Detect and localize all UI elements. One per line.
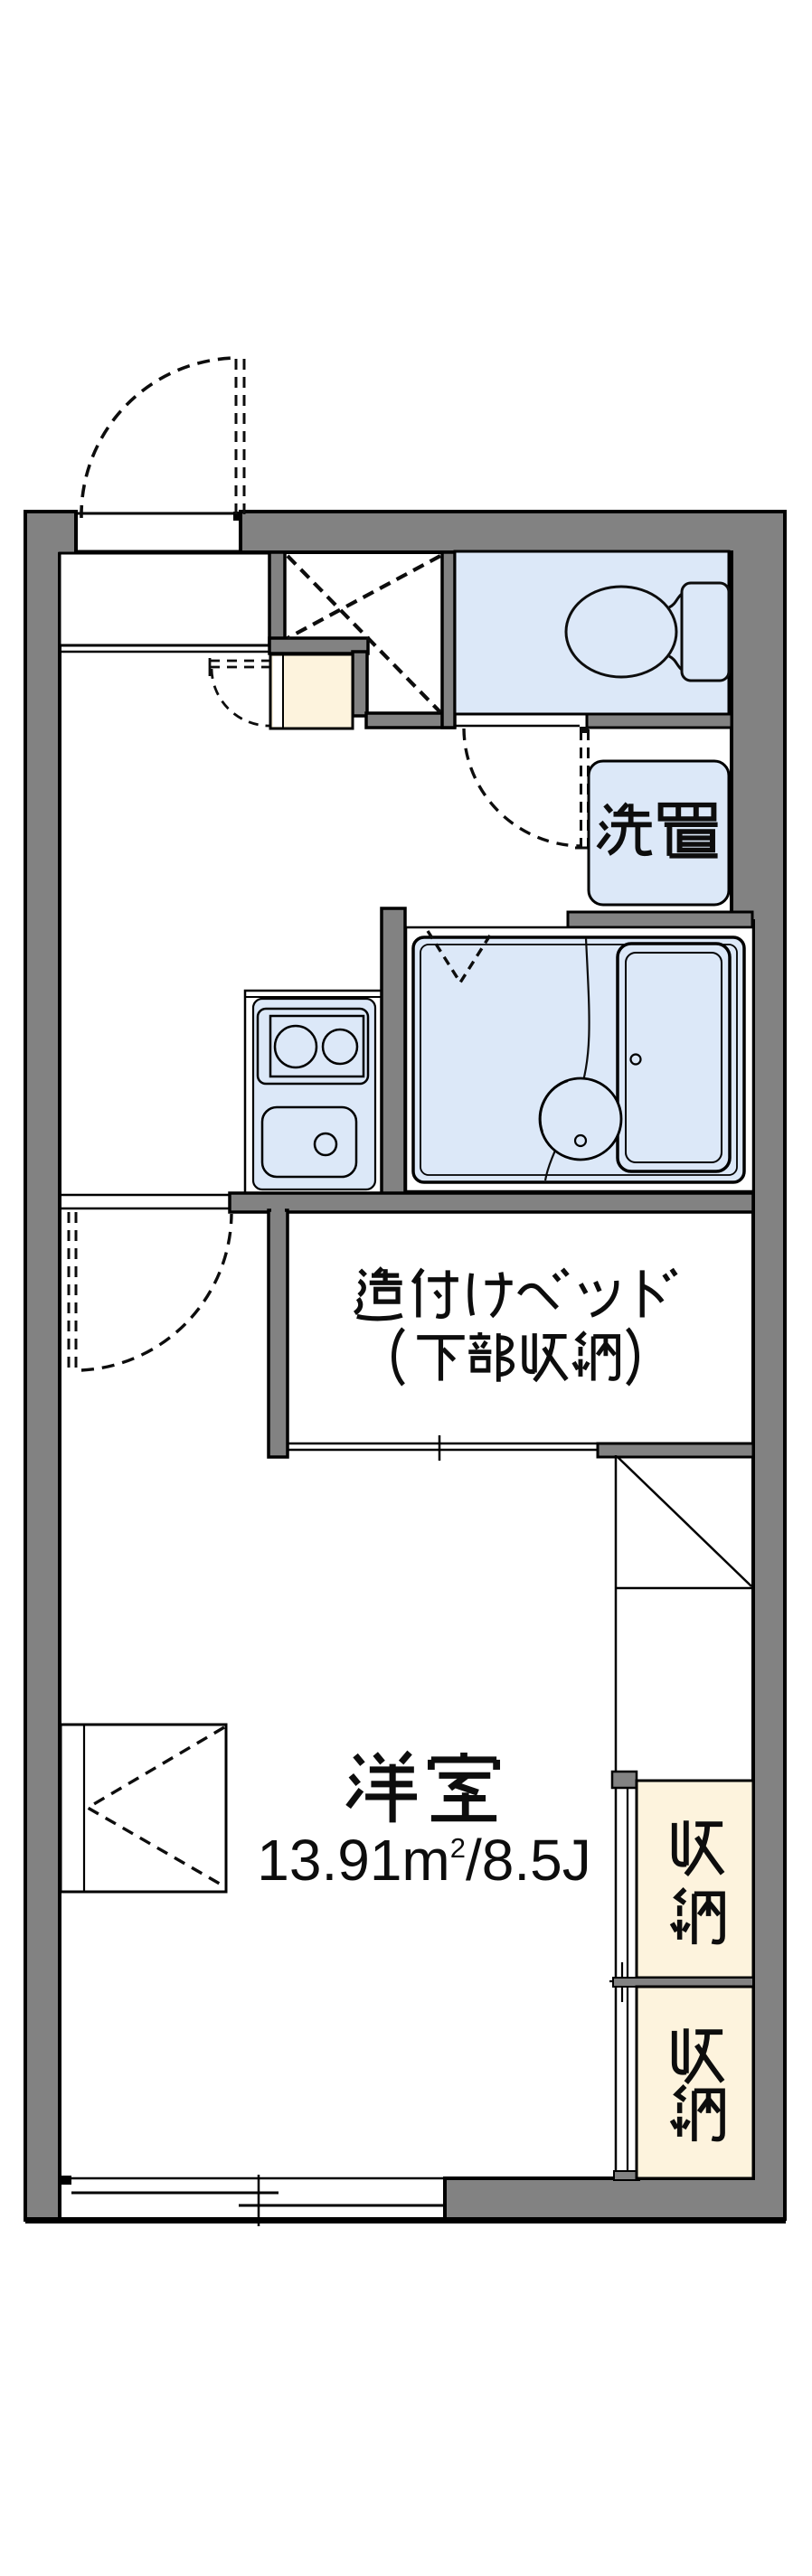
svg-text:13.91m2/8.5J: 13.91m2/8.5J <box>257 1828 590 1893</box>
